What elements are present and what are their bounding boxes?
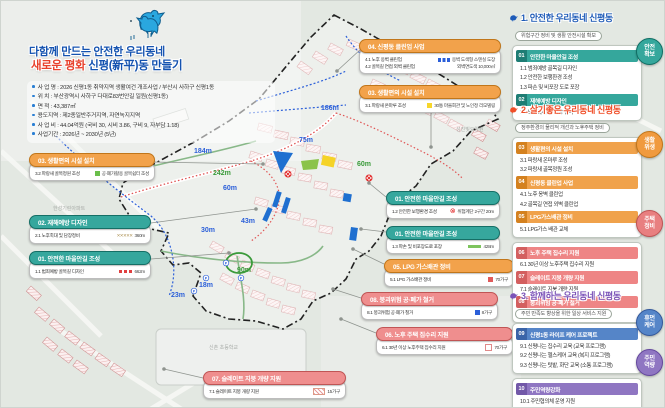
program-summary-panel: 1. 안전한 우리동네 신평동 위험구간 정비 및 생활 안전시설 확보 01안…: [509, 1, 665, 408]
yellow-square-legend-icon: [427, 103, 432, 108]
pink-outline-square-legend-icon: [485, 344, 492, 351]
group-06: 06노후 주택 집수리 지원: [516, 247, 638, 259]
info-line: 용도지역 : 제2종일반주거지역, 자연녹지지역: [32, 112, 270, 121]
group-04: 04신평동 클린업 사업: [516, 176, 638, 188]
bluebirds-icon: [117, 7, 171, 41]
distance-label: 18m: [199, 282, 213, 289]
bird-icon: [509, 106, 519, 114]
distance-label: 60m: [223, 185, 237, 192]
neighborhood-plan-poster: P P P P 186m 184m 242m 75m 60m 60m 43m 3…: [0, 0, 665, 408]
bird-icon: [509, 292, 519, 300]
info-line: 위 치 : 부산광역시 사하구 다대로83번안길 일원(신평1동): [32, 93, 270, 102]
group-item: 6.1 30년 이상 노후주택 집수리 지원: [516, 259, 638, 269]
callout-title: 07. 슬레이트 지붕 개량 지원: [203, 371, 346, 385]
green-square-legend-icon: [95, 171, 100, 176]
group-item: 9.1 신평나는 집수리 교육 (교육 프로그램): [516, 340, 638, 350]
group-07: 07슬레이트 지붕 개량 지원: [516, 271, 638, 283]
group-item: 1.1 범죄예방 골목길 디자인: [516, 62, 638, 72]
group-item: 1.3 파손 및 비포장 도로 포장: [516, 81, 638, 91]
info-line: 사 업 비 : 44.04억원 (국비 30, 시비 3.86, 구비 9, 자…: [32, 122, 270, 131]
section2-card-a: 03생활편의 시설 설치 3.1 파랑새 온마루 조성 3.2 파랑새 골목정원…: [512, 137, 642, 238]
callout-01-left: 01. 안전한 마을안길 조성 1.1 범죄예방 골목길 디자인 662m: [29, 251, 151, 279]
resident-capacity-tag-pill: 주민역량: [636, 349, 663, 376]
blue-square-legend-icon: [475, 310, 480, 315]
group-01: 01안전한 마을안길 조성: [516, 50, 638, 62]
slate-hatch-legend-icon: [313, 388, 325, 395]
green-bar-legend-icon: [468, 245, 481, 249]
section3-title: 3. 함께하는 우리동네 신평동: [509, 289, 665, 302]
callout-01-right-1: 01. 안전한 마을안길 조성 1.2 안전한 보행환경 조성 위험계단 2구간…: [386, 191, 500, 219]
section3-card-a: 09신평1동 라이프 케어 프로젝트 9.1 신평나는 집수리 교육 (교육 프…: [512, 323, 642, 374]
group-item: 9.3 신평나는 텃밭, 화단 교육 (소통 프로그램): [516, 359, 638, 369]
callout-02-left: 02. 재해예방 디자인 2.1 노후축대 및 담장정비 360m: [29, 215, 151, 244]
section2-subtitle: 정주환경의 물리적 개선과 노후주택 정비: [515, 123, 610, 133]
place-label: 신촌 초등학교: [209, 344, 238, 351]
danger-stairs-legend-icon: [450, 208, 456, 215]
info-line: 사업기간 : 2026년 ~ 2030년 (5년): [32, 131, 270, 140]
group-item: 9.2 신평나는 헬스케어 교육 (복지 프로그램): [516, 350, 638, 360]
group-item: 4.1 노후 옹벽 클린업: [516, 189, 638, 199]
housing-tag-pill: 주택정비: [636, 210, 663, 237]
group-03: 03생활편의 시설 설치: [516, 142, 638, 154]
info-line: 사 업 명 : 2026 신평1동 취약지역 생활여건 개조사업 / 부산시 사…: [32, 84, 270, 93]
place-label: 한성기린아파트: [53, 205, 86, 212]
group-item: 1.2 안전한 보행환경 조성: [516, 72, 638, 82]
group-10: 10주민역량강화: [516, 383, 638, 395]
distance-label: 242m: [213, 170, 231, 177]
distance-label: 184m: [194, 148, 212, 155]
bird-icon: [509, 14, 519, 22]
group-item: 4.2 골목길 연접 외벽 클린업: [516, 198, 638, 208]
red-square-legend-icon: [488, 277, 493, 282]
callout-05: 05. LPG 가스배관 정비 5.1 LPG 가스배관 정비 70가구: [384, 259, 514, 287]
callout-title: 01. 안전한 마을안길 조성: [386, 226, 500, 240]
callout-title: 05. LPG 가스배관 정비: [384, 259, 514, 273]
group-05: 05LPG가스배관 정비: [516, 211, 638, 223]
section3-subtitle: 주민 만족도 향상을 위한 일상 서비스 지원: [515, 309, 612, 319]
group-item: 3.2 파랑새 골목정원 조성: [516, 164, 638, 174]
living-tag-pill: 생활위생: [636, 131, 663, 158]
blue-squares-legend-icon: [438, 58, 450, 62]
poster-title-line2: 새로운 평화 신평(新平)동 만들기: [31, 57, 182, 73]
section1-subtitle: 위험구간 정비 및 생활 안전시설 확보: [515, 31, 602, 41]
project-info-list: 사 업 명 : 2026 신평1동 취약지역 생활여건 개조사업 / 부산시 사…: [27, 81, 275, 143]
callout-06: 06. 노후 주택 집수리 지원 6.1 30년 이상 노후주택 집수리 지원 …: [376, 327, 513, 355]
red-dash-legend-icon: [119, 270, 132, 273]
callout-title: 08. 붕괴위험 공·폐가 철거: [361, 292, 498, 306]
distance-label: 23m: [171, 292, 185, 299]
callout-03-top: 03. 생활편의 시설 설치 3.1 파랑새 온마루 조성 30통 마을회관 및…: [359, 85, 501, 113]
callout-04-top: 04. 신평동 클린업 사업 4.1 노후 옹벽 클린업 옹벽 도색형 스텐실 …: [359, 39, 501, 74]
distance-label: 90m: [237, 267, 251, 274]
wall-x-legend-icon: [117, 232, 133, 240]
distance-label: 75m: [299, 137, 313, 144]
section-together-town: 3. 함께하는 우리동네 신평동 주민 만족도 향상을 위한 일상 서비스 지원…: [509, 289, 665, 408]
place-label: 성진빛요양원: [456, 126, 484, 133]
section2-title: 2. 살기좋은 우리동네 신평동: [509, 103, 665, 116]
callout-title: 03. 생활편의 시설 설치: [29, 153, 155, 167]
group-09: 09신평1동 라이프 케어 프로젝트: [516, 328, 638, 340]
callout-title: 01. 안전한 마을안길 조성: [386, 191, 500, 205]
callout-title: 01. 안전한 마을안길 조성: [29, 251, 151, 265]
group-item: 10.1 주민협의체 운영 지원: [516, 395, 638, 405]
info-line: 면 적 : 43,387㎡: [32, 103, 270, 112]
safety-tag-pill: 안전확보: [636, 38, 663, 65]
section1-title: 1. 안전한 우리동네 신평동: [509, 11, 665, 24]
title-blue-part: 신평(新平)동 만들기: [85, 60, 182, 72]
distance-label: 186m: [321, 105, 339, 112]
distance-label: 43m: [241, 218, 255, 225]
callout-07: 07. 슬레이트 지붕 개량 지원 7.1 슬레이트 지붕 개량 지원 15가구: [203, 371, 346, 399]
callout-03-left: 03. 생활편의 시설 설치 3.2 파랑새 골목정원 조성 공·폐가활용 골목…: [29, 153, 155, 181]
section3-card-b: 10주민역량강화 10.1 주민협의체 운영 지원 11새뜰마을 사업지원 11…: [512, 378, 642, 408]
callout-title: 02. 재해예방 디자인: [29, 215, 151, 229]
group-item: 5.1 LPG가스 배관 교체: [516, 223, 638, 233]
distance-label: 60m: [357, 161, 371, 168]
group-item: 3.1 파랑새 온마루 조성: [516, 154, 638, 164]
title-red-part: 새로운 평화: [31, 60, 85, 72]
callout-01-right-2: 01. 안전한 마을안길 조성 1.3 파손 및 비포장도로 포장 428m: [386, 226, 500, 254]
callout-title: 04. 신평동 클린업 사업: [359, 39, 501, 53]
distance-label: 30m: [201, 227, 215, 234]
callout-08: 08. 붕괴위험 공·폐가 철거 8.1 붕괴위험 공·폐가 철거 8가구: [361, 292, 498, 320]
human-care-tag-pill: 휴먼케어: [636, 309, 663, 336]
callout-title: 03. 생활편의 시설 설치: [359, 85, 501, 99]
callout-title: 06. 노후 주택 집수리 지원: [376, 327, 513, 341]
